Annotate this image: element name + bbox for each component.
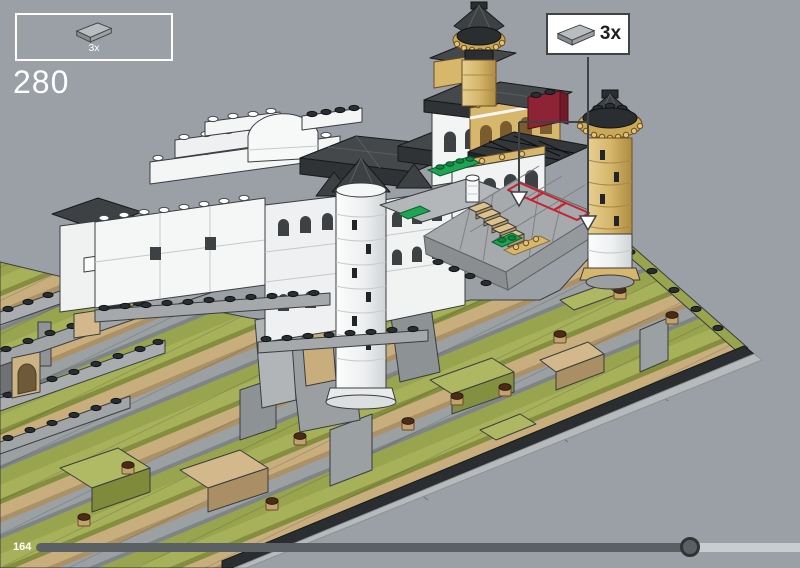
progress-handle[interactable]: [680, 537, 700, 557]
step-number: 280: [13, 64, 69, 101]
part-quantity-label: 3x: [88, 42, 99, 54]
progress-position-label: 164: [13, 541, 31, 553]
instructions-app: 3x 280 3x 164: [0, 0, 800, 568]
part-tile-icon: [555, 22, 597, 47]
placement-callout: 3x: [546, 13, 630, 55]
step-parts-panel: 3x: [15, 13, 173, 61]
callout-quantity-label: 3x: [600, 23, 621, 45]
model-viewport[interactable]: [0, 0, 800, 568]
progress-scrubber: 164: [0, 536, 800, 562]
progress-fill: [36, 543, 690, 552]
castle-round-tower: [326, 158, 396, 409]
part-tile-icon: [74, 20, 114, 44]
